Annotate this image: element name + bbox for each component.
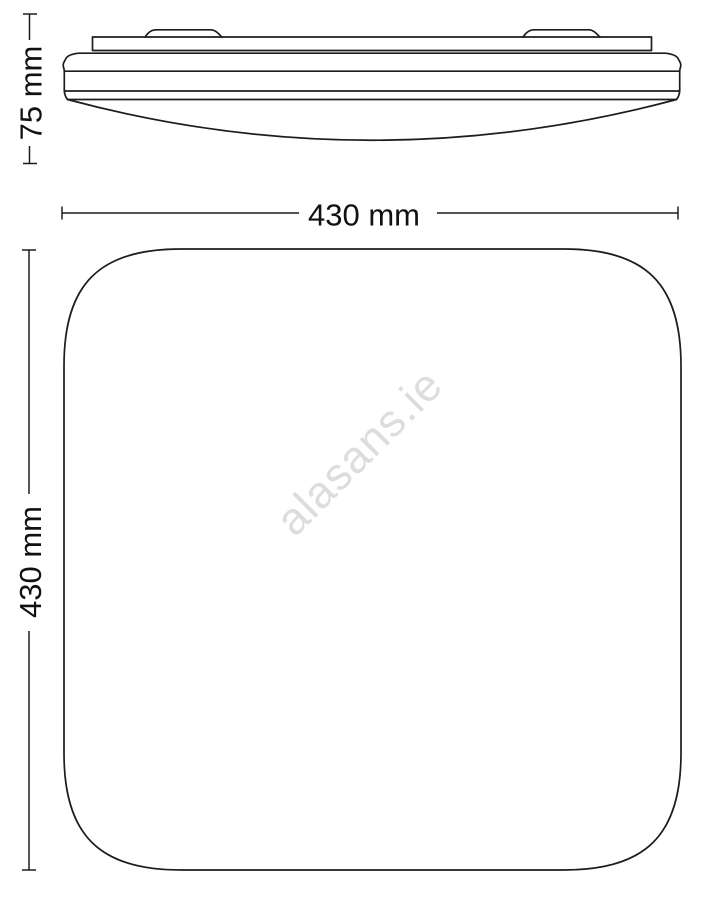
height-dimension-75mm: 75 mm: [14, 14, 49, 164]
width-dimension-430mm: 430 mm: [62, 198, 678, 233]
width-dimension-label: 430 mm: [308, 198, 420, 233]
watermark-text: alasans.ie: [266, 359, 452, 545]
diffuser-arc: [68, 100, 677, 141]
upper-housing-right-edge: [666, 53, 681, 71]
ceiling-light-dimension-drawing: 75 mm 430 mm 430 mm alasans.ie: [0, 0, 711, 901]
upper-housing-left-edge: [63, 53, 78, 71]
dimension-drawing-page: 75 mm 430 mm 430 mm alasans.ie: [0, 0, 711, 901]
rounded-square-outline: [64, 249, 681, 870]
height-dimension-label: 75 mm: [14, 46, 49, 141]
rim-right-edge: [677, 91, 680, 100]
length-dimension-label: 430 mm: [13, 506, 48, 618]
mounting-clip-right: [523, 30, 600, 37]
mounting-clip-left: [145, 30, 222, 37]
side-view: [63, 30, 681, 140]
rim-left-edge: [64, 91, 67, 100]
length-dimension-430mm: 430 mm: [13, 250, 48, 870]
top-view: [64, 249, 681, 870]
mounting-plate: [93, 37, 652, 51]
